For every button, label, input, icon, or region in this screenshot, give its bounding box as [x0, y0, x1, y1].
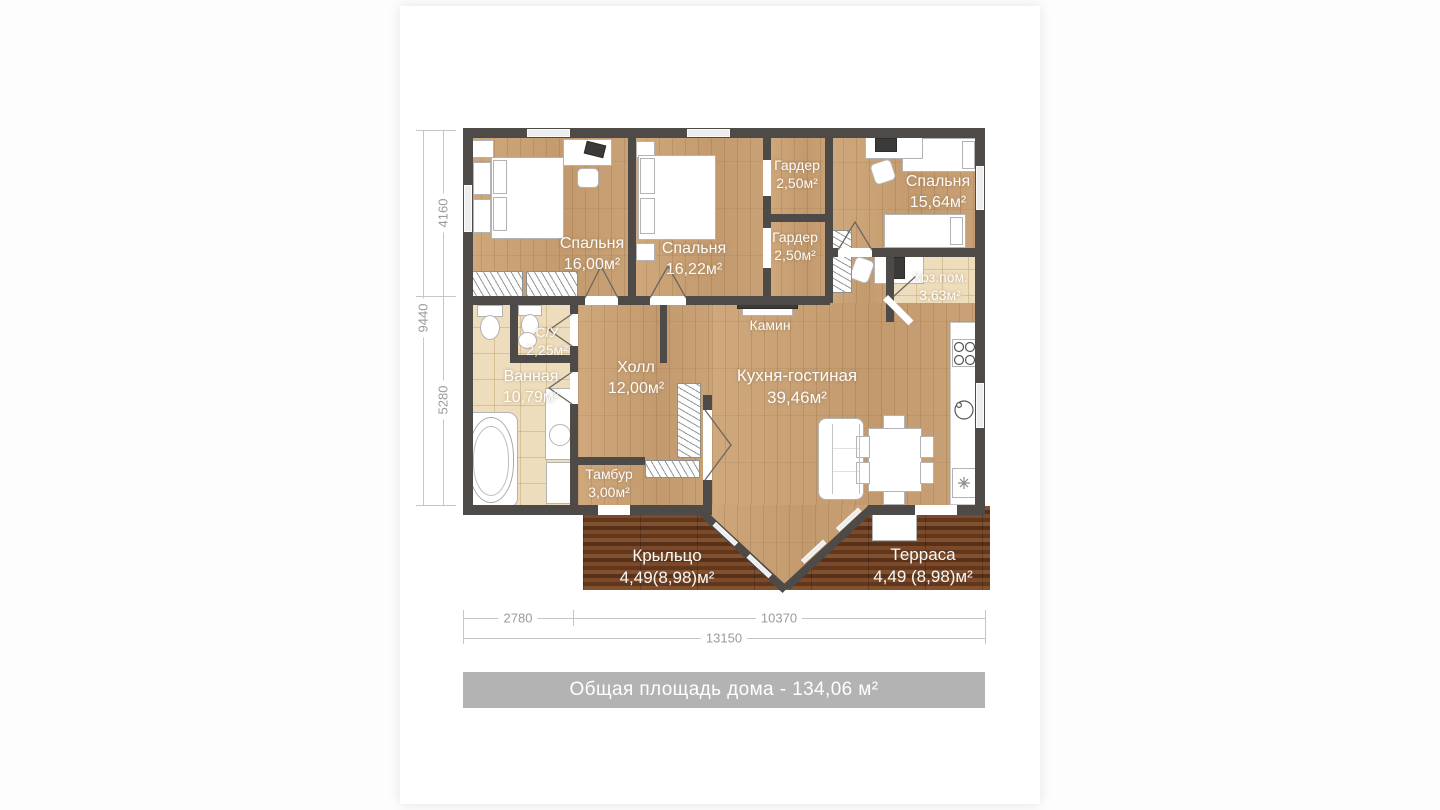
- chair: [920, 436, 934, 458]
- pillow: [950, 217, 963, 245]
- dining-table: [868, 428, 922, 492]
- wall-middle: [463, 296, 830, 305]
- dim-value-left-total: 9440: [416, 299, 431, 338]
- stove: [952, 339, 976, 367]
- total-area-banner: Общая площадь дома - 134,06 м²: [463, 672, 985, 708]
- door-bathroom: [570, 372, 578, 404]
- wall-wc-left: [510, 303, 518, 363]
- room-area: 16,00м²: [564, 255, 620, 276]
- room-label-hall: Холл 12,00м²: [608, 358, 664, 400]
- room-label-kitchen-living: Кухня-гостиная 39,46м²: [737, 365, 857, 409]
- dim-value-bottom-right: 10370: [756, 611, 802, 626]
- pillow: [493, 197, 507, 231]
- wall-bottom-left: [463, 505, 712, 515]
- nightstand: [473, 199, 491, 233]
- room-label-porch: Крыльцо 4,49(8,98)м²: [620, 545, 715, 589]
- room-label-bedroom-2: Спальня 16,22м²: [662, 239, 726, 281]
- dim-line-left-inner: [443, 130, 444, 505]
- chair: [920, 462, 934, 484]
- window-bedroom-1-top: [527, 129, 570, 137]
- dim-tick: [573, 610, 574, 626]
- dim-value-bottom-total: 13150: [701, 631, 747, 646]
- wardrobe-unit: [468, 271, 523, 297]
- window-bedroom-1-left: [464, 185, 472, 232]
- wall-utility-left: [886, 257, 894, 322]
- dim-tick: [985, 610, 986, 644]
- room-area: 15,64м²: [910, 193, 966, 214]
- room-name: Тамбур: [585, 465, 633, 483]
- room-name: Ванная: [504, 367, 559, 388]
- pillow: [493, 160, 507, 194]
- door-bedroom-2: [650, 296, 686, 305]
- dim-tick: [416, 505, 456, 506]
- fireplace-label: Камин: [749, 316, 790, 334]
- chair: [883, 415, 905, 429]
- dim-tick: [463, 610, 464, 644]
- pillow: [962, 141, 975, 169]
- room-name: Терраса: [890, 544, 955, 566]
- room-label-wc: С/У 2,25м²: [526, 323, 568, 359]
- entrance-door: [598, 505, 630, 515]
- room-area: 39,46м²: [767, 387, 827, 409]
- room-label-bathroom: Ванная 10,79м²: [503, 367, 559, 409]
- chair: [883, 491, 905, 505]
- room-label-wardrobe-bottom: Гардер 2,50м²: [772, 228, 818, 264]
- door-hall-living: [703, 410, 712, 480]
- bathroom-sink: [549, 424, 571, 446]
- wall-bed1-bed2: [628, 138, 636, 303]
- room-label-bedroom-3: Спальня 15,64м²: [906, 172, 970, 214]
- toilet: [480, 315, 500, 340]
- door-wardrobe-bottom: [763, 228, 771, 268]
- room-label-wardrobe-top: Гардер 2,50м²: [774, 156, 820, 192]
- door-wardrobe-top: [763, 160, 771, 196]
- wall-wardrobe-split: [768, 214, 825, 222]
- room-label-terrace: Терраса 4,49 (8,98)м²: [873, 544, 973, 588]
- room-name: Хоз.пом.: [912, 268, 968, 286]
- room-area: 4,49 (8,98)м²: [873, 566, 973, 588]
- room-label-vestibule: Тамбур 3,00м²: [585, 465, 633, 501]
- room-area: 12,00м²: [608, 379, 664, 400]
- coat-rack: [645, 460, 700, 478]
- terrace-door: [915, 505, 957, 515]
- room-area: 2,25м²: [526, 341, 568, 359]
- dim-tick: [416, 130, 456, 131]
- room-area: 2,50м²: [776, 174, 818, 192]
- sofa-cushions: [832, 424, 860, 494]
- room-name: Кухня-гостиная: [737, 365, 857, 387]
- window-kitchen-right: [976, 383, 984, 428]
- room-area: 4,49(8,98)м²: [620, 567, 715, 589]
- window-bedroom-2-top: [687, 129, 730, 137]
- room-area: 16,22м²: [666, 260, 722, 281]
- room-area: 10,79м²: [503, 388, 559, 409]
- total-area-text: Общая площадь дома - 134,06 м²: [570, 679, 879, 701]
- room-name: Гардер: [772, 228, 818, 246]
- dresser: [471, 140, 494, 158]
- room-label-bedroom-1: Спальня 16,00м²: [560, 234, 624, 276]
- room-area: 2,50м²: [774, 246, 816, 264]
- closet: [831, 230, 852, 293]
- nightstand: [473, 162, 491, 195]
- room-name: Спальня: [662, 239, 726, 260]
- wall-vestibule-top: [578, 457, 645, 465]
- floor-plan-page: Спальня 16,00м² Спальня 16,22м² Гардер 2…: [0, 0, 1440, 810]
- dim-value-left-top: 4160: [436, 194, 451, 233]
- wall-wardrobe-bed3: [825, 138, 833, 303]
- pillow: [640, 198, 655, 234]
- room-name: Холл: [617, 358, 655, 379]
- room-name: Спальня: [560, 234, 624, 255]
- room-name: С/У: [536, 323, 559, 341]
- dim-line-bottom-inner: [463, 618, 985, 619]
- window-bedroom-3-right: [976, 166, 984, 210]
- dim-tick: [416, 296, 456, 297]
- pillow: [640, 158, 655, 194]
- room-name: Крыльцо: [632, 545, 701, 567]
- bathtub-basin: [473, 426, 509, 496]
- room-area: 3,63м²: [919, 286, 961, 304]
- room-name: Спальня: [906, 172, 970, 193]
- hall-closet: [677, 383, 701, 458]
- laptop: [875, 138, 897, 152]
- door-wc: [570, 314, 578, 346]
- appliance: [952, 468, 976, 498]
- chair: [577, 168, 599, 188]
- room-label-utility: Хоз.пом. 3,63м²: [912, 268, 968, 304]
- wall-hall-spur: [660, 296, 667, 363]
- room-name: Гардер: [774, 156, 820, 174]
- dim-value-bottom-left: 2780: [499, 611, 538, 626]
- dim-value-left-bottom: 5280: [436, 381, 451, 420]
- door-bedroom-3: [838, 248, 872, 257]
- door-bedroom-1: [585, 296, 618, 305]
- room-area: 3,00м²: [588, 483, 630, 501]
- nightstand: [636, 243, 655, 261]
